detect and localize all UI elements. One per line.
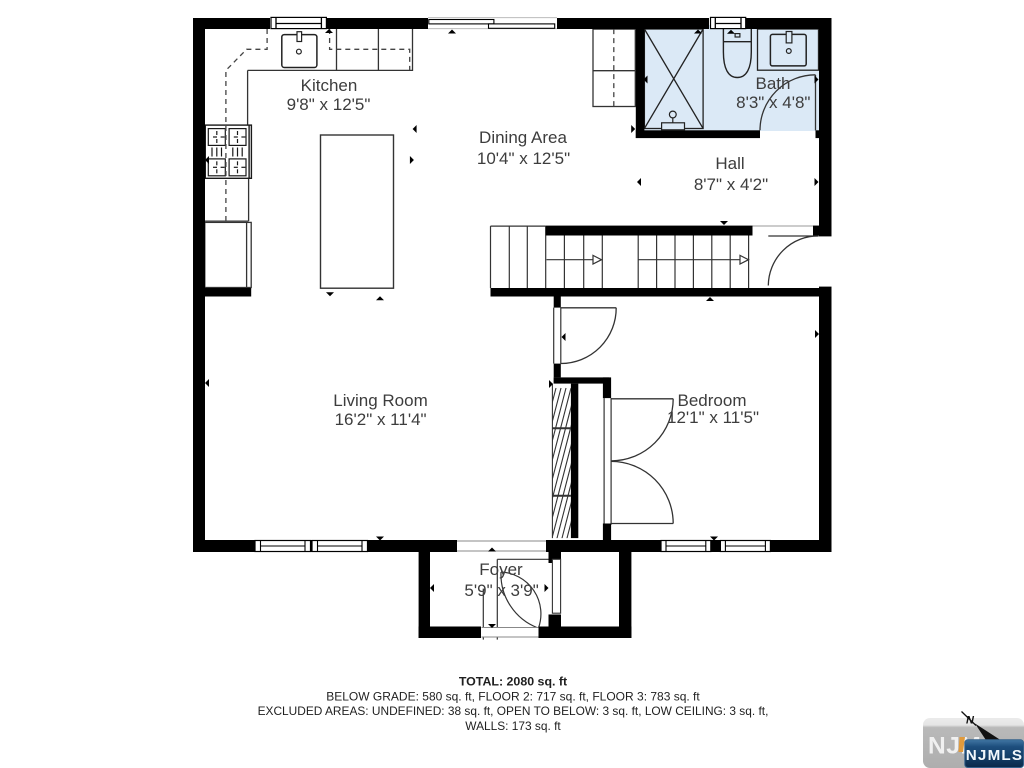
svg-text:9'8" x 12'5": 9'8" x 12'5" <box>287 95 371 114</box>
svg-text:Dining Area: Dining Area <box>479 128 567 147</box>
svg-text:Foyer: Foyer <box>479 560 523 579</box>
svg-text:BELOW GRADE: 580 sq. ft, FLOOR: BELOW GRADE: 580 sq. ft, FLOOR 2: 717 sq… <box>326 690 700 704</box>
svg-text:Kitchen: Kitchen <box>301 76 358 95</box>
svg-text:WALLS: 173 sq. ft: WALLS: 173 sq. ft <box>465 719 561 733</box>
svg-text:EXCLUDED AREAS: UNDEFINED: 38: EXCLUDED AREAS: UNDEFINED: 38 sq. ft, OP… <box>258 704 769 718</box>
svg-text:8'7" x 4'2": 8'7" x 4'2" <box>694 175 768 194</box>
svg-text:NJMLS: NJMLS <box>966 747 1023 764</box>
svg-text:N: N <box>966 715 975 727</box>
svg-text:12'1" x 11'5": 12'1" x 11'5" <box>667 408 759 427</box>
svg-text:5'9" x 3'9": 5'9" x 3'9" <box>464 581 538 600</box>
svg-text:10'4" x 12'5": 10'4" x 12'5" <box>477 149 570 168</box>
svg-text:TOTAL: 2080 sq. ft: TOTAL: 2080 sq. ft <box>459 675 567 689</box>
svg-text:Bath: Bath <box>756 74 791 93</box>
svg-text:Hall: Hall <box>715 154 744 173</box>
svg-text:8'3" x 4'8": 8'3" x 4'8" <box>736 93 810 112</box>
svg-text:Living Room: Living Room <box>333 391 428 410</box>
svg-text:16'2" x 11'4": 16'2" x 11'4" <box>335 410 427 429</box>
